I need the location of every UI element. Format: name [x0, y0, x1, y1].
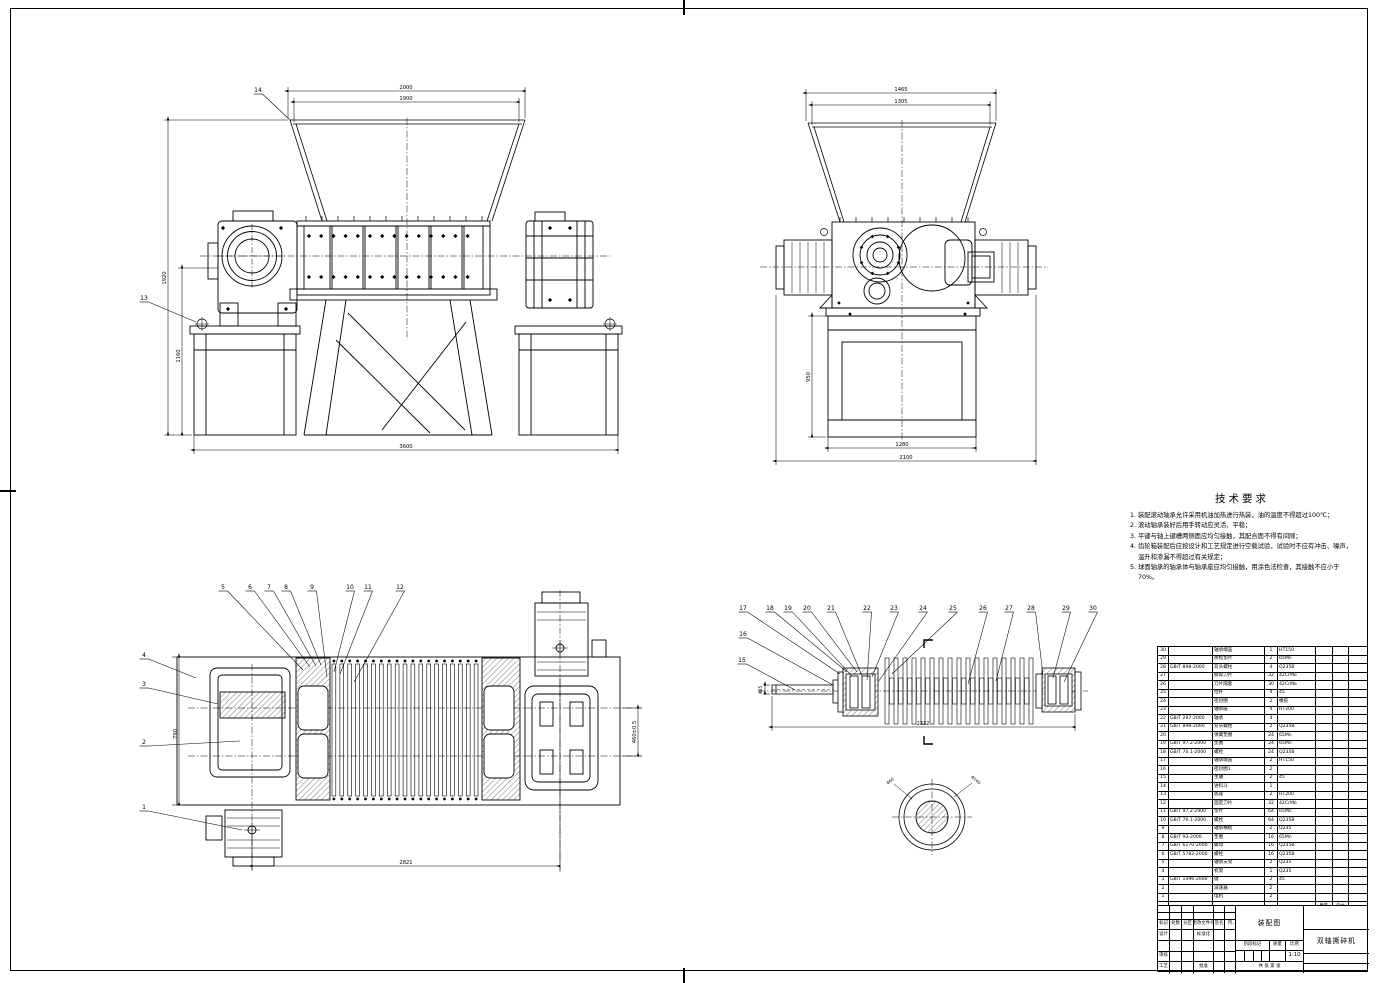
plan-cutter-discs: [332, 660, 478, 800]
parts-cell-rm: [1349, 706, 1369, 715]
parts-cell-no: 16: [1158, 766, 1169, 775]
scale-value: 1:10: [1286, 951, 1304, 962]
parts-cell-name: 轴承座: [1213, 706, 1265, 715]
parts-cell-name: 弹簧垫圈: [1213, 732, 1265, 741]
plan-left-motor: [206, 810, 282, 866]
callout: 21: [827, 605, 863, 676]
svg-text:1305: 1305: [894, 99, 907, 105]
parts-row: 30轴承端盖1HT150: [1158, 647, 1369, 656]
parts-cell-wt: [1333, 800, 1349, 809]
parts-row: 8GB/T 93-2000垫圈1665Mn: [1158, 834, 1369, 843]
parts-row: 19GB/T 97.2-2000垫圈2465Mn: [1158, 740, 1369, 749]
parts-cell-material: Q235B: [1278, 817, 1316, 826]
parts-cell-wu: [1316, 791, 1333, 800]
parts-row: 20弹簧垫圈2465Mn: [1158, 732, 1369, 741]
engineering-drawing-sheet: 2000 1900 3600 1920 1160 1413: [0, 0, 1376, 983]
stage-box: [1254, 951, 1262, 962]
label-design: 设计: [1158, 930, 1170, 941]
svg-text:460±0.5: 460±0.5: [632, 721, 638, 744]
parts-cell-material: 42CrMo: [1278, 800, 1316, 809]
parts-cell-rm: [1349, 740, 1369, 749]
sig-cell: [1182, 941, 1194, 952]
parts-cell-rm: [1349, 851, 1369, 860]
front-view: 2000 1900 3600 1920 1160 1413: [130, 78, 655, 478]
left-center-mark: [0, 490, 16, 492]
front-box-bolts: [221, 216, 572, 311]
side-left-motor: [776, 240, 832, 295]
parts-cell-wu: [1316, 749, 1333, 758]
label-standardize: 标准化: [1194, 930, 1214, 941]
parts-cell-no: 26: [1158, 681, 1169, 690]
parts-cell-code: GB/T 70.1-2000: [1169, 817, 1213, 826]
parts-cell-code: GB/T 6170-2000: [1169, 842, 1213, 851]
parts-cell-qty: 1: [1265, 647, 1278, 656]
parts-cell-name: 刀片隔套: [1213, 681, 1265, 690]
parts-cell-code: GB/T 297-2000: [1169, 715, 1213, 724]
sig-cell: [1182, 962, 1194, 973]
parts-cell-code: [1169, 647, 1213, 656]
parts-cell-rm: [1349, 791, 1369, 800]
sig-cell: [1225, 962, 1236, 973]
parts-cell-code: GB/T 898-2000: [1169, 664, 1213, 673]
svg-text:9: 9: [310, 584, 314, 591]
parts-cell-wt: [1333, 774, 1349, 783]
parts-row: 17轴承端盖2HT150: [1158, 757, 1369, 766]
parts-cell-code: [1169, 655, 1213, 664]
parts-cell-rm: [1349, 800, 1369, 809]
parts-cell-name: 螺栓: [1213, 817, 1265, 826]
callout: 17: [739, 605, 841, 674]
plan-dimension-labels: 790 2821 460±0.5: [173, 721, 638, 866]
parts-cell-name: 主轴: [1213, 774, 1265, 783]
svg-text:5: 5: [221, 584, 225, 591]
parts-cell-no: 4: [1158, 868, 1169, 877]
parts-cell-material: 65Mn: [1278, 808, 1316, 817]
parts-cell-wu: [1316, 766, 1333, 775]
parts-cell-no: 14: [1158, 783, 1169, 792]
parts-cell-name: 减速器: [1213, 885, 1265, 894]
parts-list: 30轴承端盖1HT15029防松垫片265Mn28GB/T 898-2000双头…: [1157, 646, 1368, 905]
label-count: 处数: [1170, 920, 1182, 930]
parts-cell-name: 拉杆: [1213, 689, 1265, 698]
sig-cell: [1170, 952, 1182, 962]
label-zone: 分区: [1182, 920, 1194, 930]
parts-cell-rm: [1349, 672, 1369, 681]
revision-cell: [1214, 913, 1225, 920]
parts-cell-rm: [1349, 783, 1369, 792]
callout: 26: [968, 605, 988, 684]
parts-cell-material: [1278, 885, 1316, 894]
parts-row: 23轴承座4HT200: [1158, 706, 1369, 715]
parts-cell-rm: [1349, 732, 1369, 741]
parts-cell-no: 11: [1158, 808, 1169, 817]
svg-text:22: 22: [863, 605, 871, 612]
parts-cell-wt: [1333, 791, 1349, 800]
parts-row: 10GB/T 70.1-2000螺栓64Q235B: [1158, 817, 1369, 826]
front-left-stand: [190, 317, 300, 435]
parts-cell-qty: 64: [1265, 808, 1278, 817]
parts-cell-name: 轴承支架: [1213, 859, 1265, 868]
revision-cell: [1182, 906, 1194, 913]
revision-cell: [1225, 906, 1236, 913]
drawing-type: 装配图: [1236, 906, 1304, 941]
parts-cell-rm: [1349, 715, 1369, 724]
code-cell: [1304, 954, 1369, 964]
parts-cell-qty: 16: [1265, 834, 1278, 843]
svg-text:17: 17: [739, 605, 747, 612]
parts-cell-code: GB/T 1096-2000: [1169, 876, 1213, 885]
svg-text:2332: 2332: [917, 721, 930, 727]
sig-cell: [1214, 930, 1225, 941]
stage-box: [1245, 951, 1254, 962]
parts-cell-qty: 2: [1265, 757, 1278, 766]
parts-cell-rm: [1349, 885, 1369, 894]
svg-text:6: 6: [248, 584, 252, 591]
parts-cell-no: 28: [1158, 664, 1169, 673]
parts-cell-qty: 1: [1265, 868, 1278, 877]
parts-cell-rm: [1349, 723, 1369, 732]
label-change-file: 更改文件号: [1194, 920, 1214, 930]
sheet-count: 共 张 第 张: [1236, 962, 1304, 973]
svg-text:3: 3: [142, 681, 146, 688]
parts-cell-qty: 24: [1265, 740, 1278, 749]
parts-row: 14进料斗1: [1158, 783, 1369, 792]
parts-cell-rm: [1349, 655, 1369, 664]
svg-text:2821: 2821: [399, 860, 412, 866]
svg-text:14: 14: [254, 87, 262, 94]
parts-cell-wu: [1316, 834, 1333, 843]
parts-cell-wu: [1316, 689, 1333, 698]
parts-cell-code: [1169, 706, 1213, 715]
side-dimension-labels: 1465 1305 950 1280 2100: [806, 87, 913, 461]
parts-row: 1电机2: [1158, 893, 1369, 902]
parts-cell-rm: [1349, 834, 1369, 843]
parts-cell-name: 螺母: [1213, 842, 1265, 851]
parts-cell-qty: 2: [1265, 893, 1278, 902]
parts-cell-rm: [1349, 825, 1369, 834]
parts-cell-wt: [1333, 655, 1349, 664]
svg-text:19: 19: [784, 605, 792, 612]
parts-cell-wt: [1333, 647, 1349, 656]
parts-cell-no: 8: [1158, 834, 1169, 843]
parts-cell-name: 轴承端盖: [1213, 647, 1265, 656]
weight-value: [1270, 951, 1286, 962]
parts-cell-code: [1169, 783, 1213, 792]
parts-cell-no: 12: [1158, 800, 1169, 809]
parts-cell-wt: [1333, 706, 1349, 715]
plan-left-reducer: [210, 668, 290, 777]
parts-cell-material: HT200: [1278, 791, 1316, 800]
parts-cell-name: 电机: [1213, 893, 1265, 902]
parts-cell-qty: 16: [1265, 842, 1278, 851]
parts-row: 9轴承横板2Q235: [1158, 825, 1369, 834]
front-callouts: 1413: [140, 87, 292, 322]
parts-cell-wt: [1333, 859, 1349, 868]
parts-cell-wt: [1333, 672, 1349, 681]
parts-cell-no: 18: [1158, 749, 1169, 758]
stage-box: [1236, 951, 1245, 962]
parts-cell-no: 2: [1158, 885, 1169, 894]
parts-cell-material: [1278, 715, 1316, 724]
bottom-center-mark: [683, 968, 685, 983]
parts-cell-material: Q235B: [1278, 851, 1316, 860]
parts-cell-no: 10: [1158, 817, 1169, 826]
plan-right-motor: [535, 592, 606, 676]
parts-cell-qty: 4: [1265, 664, 1278, 673]
parts-cell-name: 双头螺柱: [1213, 723, 1265, 732]
svg-text:2000: 2000: [399, 85, 412, 91]
svg-text:1280: 1280: [895, 442, 908, 448]
callout: 6: [246, 584, 311, 667]
label-stage-mark: 阶段标记: [1236, 941, 1270, 951]
parts-cell-qty: 2: [1265, 791, 1278, 800]
tech-requirement-item: 4. 齿轮箱装配后应按设计和工艺规定进行空载试验，试验时不应有冲击、噪声，温升和…: [1126, 542, 1358, 563]
parts-cell-material: Q235: [1278, 825, 1316, 834]
parts-cell-code: [1169, 825, 1213, 834]
parts-cell-qty: 2: [1265, 655, 1278, 664]
svg-text:8: 8: [284, 584, 288, 591]
shaft-assembly-view: 2332 Φ85 Φ60 Φ160 1516171819202122232425…: [700, 590, 1130, 870]
parts-cell-wu: [1316, 808, 1333, 817]
parts-cell-wt: [1333, 817, 1349, 826]
parts-cell-material: HT150: [1278, 647, 1316, 656]
sig-cell: [1170, 941, 1182, 952]
svg-text:18: 18: [766, 605, 774, 612]
plan-view: 790 2821 460±0.5 123456789101112: [130, 578, 655, 893]
parts-cell-wt: [1333, 825, 1349, 834]
parts-cell-material: Q235: [1278, 859, 1316, 868]
parts-cell-rm: [1349, 808, 1369, 817]
sig-cell: [1194, 952, 1214, 962]
top-center-mark: [683, 0, 685, 15]
parts-cell-material: [1278, 783, 1316, 792]
parts-cell-wt: [1333, 757, 1349, 766]
parts-row: 26刀片隔套3042CrMo: [1158, 681, 1369, 690]
front-cutter-box: [297, 221, 490, 295]
company-cell: [1304, 906, 1369, 930]
tech-requirements-list: 1. 装配滚动轴承允许采用机油加热进行热装，油的温度不得超过100℃；2. 滚动…: [1126, 511, 1358, 584]
parts-cell-rm: [1349, 876, 1369, 885]
parts-row: 18GB/T 70.1-2000螺栓24Q235B: [1158, 749, 1369, 758]
parts-cell-wt: [1333, 808, 1349, 817]
parts-cell-name: 进料斗: [1213, 783, 1265, 792]
parts-cell-material: 42CrMo: [1278, 681, 1316, 690]
parts-cell-material: 65Mn: [1278, 834, 1316, 843]
svg-text:790: 790: [173, 729, 179, 739]
revision-cell: [1194, 906, 1214, 913]
parts-row: 22GB/T 297-2000轴承4: [1158, 715, 1369, 724]
revision-cell: [1170, 913, 1182, 920]
parts-cell-wt: [1333, 851, 1349, 860]
svg-text:30: 30: [1089, 605, 1097, 612]
label-sign: 签名: [1214, 920, 1225, 930]
parts-cell-no: 23: [1158, 706, 1169, 715]
parts-row: 24密封圈2橡胶: [1158, 698, 1369, 707]
parts-cell-wu: [1316, 885, 1333, 894]
parts-cell-no: 13: [1158, 791, 1169, 800]
svg-text:2: 2: [142, 739, 146, 746]
parts-cell-wu: [1316, 732, 1333, 741]
parts-cell-wt: [1333, 698, 1349, 707]
revision-cell: [1182, 913, 1194, 920]
parts-cell-wt: [1333, 842, 1349, 851]
parts-row: 7GB/T 6170-2000螺母16Q235B: [1158, 842, 1369, 851]
parts-row: 27撕碎刀片3242CrMo: [1158, 672, 1369, 681]
parts-cell-qty: 24: [1265, 749, 1278, 758]
svg-text:12: 12: [396, 584, 404, 591]
svg-text:1920: 1920: [162, 271, 168, 284]
parts-cell-qty: 4: [1265, 689, 1278, 698]
svg-text:28: 28: [1027, 605, 1035, 612]
parts-cell-no: 3: [1158, 876, 1169, 885]
parts-cell-rm: [1349, 868, 1369, 877]
plan-right-reducer: [525, 686, 598, 790]
parts-row: 4机架1Q235: [1158, 868, 1369, 877]
revision-cell: [1194, 913, 1214, 920]
parts-row: 6GB/T 5782-2000螺栓16Q235B: [1158, 851, 1369, 860]
sig-cell: [1158, 941, 1170, 952]
parts-cell-code: GB/T 5782-2000: [1169, 851, 1213, 860]
side-gearbox: [820, 222, 987, 308]
parts-cell-wu: [1316, 757, 1333, 766]
parts-cell-qty: 4: [1265, 706, 1278, 715]
parts-cell-name: 螺栓: [1213, 749, 1265, 758]
parts-cell-wt: [1333, 723, 1349, 732]
parts-cell-wu: [1316, 706, 1333, 715]
parts-cell-rm: [1349, 664, 1369, 673]
parts-cell-wu: [1316, 800, 1333, 809]
parts-cell-wu: [1316, 893, 1333, 902]
svg-text:1900: 1900: [399, 96, 412, 102]
callout: 16: [739, 631, 834, 685]
parts-cell-no: 15: [1158, 774, 1169, 783]
parts-cell-no: 22: [1158, 715, 1169, 724]
parts-cell-material: 42CrMo: [1278, 672, 1316, 681]
side-gearbox-bolts: [837, 217, 970, 316]
sig-cell: [1170, 962, 1182, 973]
parts-cell-code: [1169, 885, 1213, 894]
parts-cell-qty: 2: [1265, 825, 1278, 834]
tech-requirements-title: 技术要求: [1126, 491, 1358, 506]
parts-cell-name: 固定刀片: [1213, 800, 1265, 809]
parts-cell-name: 键: [1213, 876, 1265, 885]
parts-cell-wt: [1333, 868, 1349, 877]
parts-cell-no: 30: [1158, 647, 1169, 656]
parts-cell-qty: 16: [1265, 851, 1278, 860]
parts-cell-code: [1169, 732, 1213, 741]
parts-cell-material: 45: [1278, 689, 1316, 698]
parts-cell-code: [1169, 672, 1213, 681]
parts-cell-code: [1169, 757, 1213, 766]
svg-text:1465: 1465: [894, 87, 907, 93]
parts-cell-wu: [1316, 715, 1333, 724]
parts-cell-material: Q235B: [1278, 723, 1316, 732]
svg-text:13: 13: [140, 295, 148, 302]
sig-cell: [1182, 930, 1194, 941]
parts-cell-qty: 2: [1265, 876, 1278, 885]
plan-base-frame: [177, 657, 620, 805]
revision-cell: [1158, 913, 1170, 920]
parts-row: 16密封圈12: [1158, 766, 1369, 775]
front-right-gearbox: [526, 212, 593, 308]
tech-requirement-item: 3. 平键与轴上键槽两侧面应均匀接触，其配合面不得有间隙；: [1126, 532, 1358, 542]
svg-text:27: 27: [1005, 605, 1013, 612]
parts-cell-material: 65Mn: [1278, 732, 1316, 741]
parts-cell-name: 撕碎刀片: [1213, 672, 1265, 681]
sig-cell: [1225, 941, 1236, 952]
parts-cell-qty: 2: [1265, 885, 1278, 894]
parts-cell-qty: 64: [1265, 817, 1278, 826]
svg-text:15: 15: [738, 657, 746, 664]
parts-row: 28GB/T 898-2000双头螺柱4Q235B: [1158, 664, 1369, 673]
parts-cell-name: 密封圈: [1213, 698, 1265, 707]
parts-cell-name: 轴承端盖: [1213, 757, 1265, 766]
parts-cell-wt: [1333, 732, 1349, 741]
parts-cell-rm: [1349, 647, 1369, 656]
parts-cell-wt: [1333, 740, 1349, 749]
parts-cell-code: [1169, 681, 1213, 690]
parts-cell-rm: [1349, 766, 1369, 775]
parts-cell-wu: [1316, 655, 1333, 664]
parts-cell-material: 45: [1278, 876, 1316, 885]
sig-cell: [1170, 930, 1182, 941]
svg-text:21: 21: [827, 605, 835, 612]
parts-cell-code: [1169, 800, 1213, 809]
technical-requirements: 技术要求 1. 装配滚动轴承允许采用机油加热进行热装，油的温度不得超过100℃；…: [1126, 491, 1358, 584]
parts-cell-wt: [1333, 876, 1349, 885]
parts-cell-rm: [1349, 698, 1369, 707]
parts-row: 21GB/T 898-2000双头螺柱2Q235B: [1158, 723, 1369, 732]
front-dimension-labels: 2000 1900 3600 1920 1160: [162, 85, 413, 450]
front-right-stand: [515, 317, 622, 435]
parts-cell-wt: [1333, 664, 1349, 673]
parts-cell-code: [1169, 893, 1213, 902]
parts-cell-code: [1169, 774, 1213, 783]
parts-cell-code: GB/T 97.2-2000: [1169, 808, 1213, 817]
shaft-section-view: Φ60 Φ160: [885, 774, 982, 855]
parts-cell-no: 6: [1158, 851, 1169, 860]
parts-cell-no: 27: [1158, 672, 1169, 681]
parts-cell-material: Q235B: [1278, 749, 1316, 758]
parts-cell-wu: [1316, 681, 1333, 690]
parts-cell-code: GB/T 898-2000: [1169, 723, 1213, 732]
parts-cell-wu: [1316, 723, 1333, 732]
parts-cell-material: [1278, 766, 1316, 775]
parts-row: 5轴承支架2Q235: [1158, 859, 1369, 868]
parts-cell-material: Q235: [1278, 868, 1316, 877]
code-cell: [1304, 964, 1369, 973]
parts-cell-material: HT150: [1278, 757, 1316, 766]
parts-cell-wu: [1316, 842, 1333, 851]
side-stand: [826, 308, 980, 437]
parts-cell-rm: [1349, 774, 1369, 783]
parts-row: 11GB/T 97.2-2000垫片6465Mn: [1158, 808, 1369, 817]
parts-cell-material: 65Mn: [1278, 740, 1316, 749]
svg-text:29: 29: [1062, 605, 1070, 612]
sig-cell: [1182, 952, 1194, 962]
parts-cell-qty: 2: [1265, 698, 1278, 707]
label-mark: 标记: [1158, 920, 1170, 930]
front-support-frame: [290, 289, 497, 435]
parts-cell-code: [1169, 689, 1213, 698]
parts-cell-qty: 24: [1265, 732, 1278, 741]
parts-cell-wu: [1316, 774, 1333, 783]
label-check: 审核: [1158, 952, 1170, 962]
callout: 1: [140, 804, 243, 830]
parts-cell-qty: 32: [1265, 800, 1278, 809]
callout: 7: [265, 584, 317, 666]
parts-cell-wu: [1316, 851, 1333, 860]
